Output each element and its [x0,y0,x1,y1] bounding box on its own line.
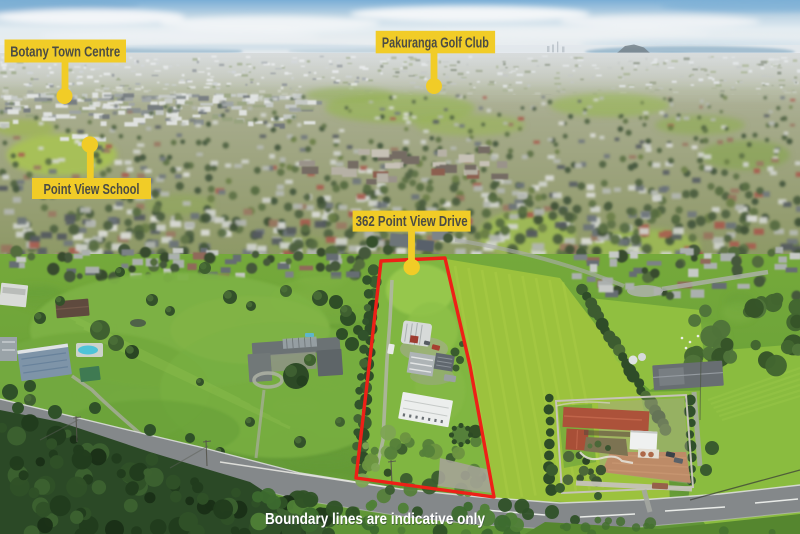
svg-text:Boundary lines are indicative: Boundary lines are indicative only [265,511,485,528]
svg-text:362 Point View Drive: 362 Point View Drive [356,214,468,230]
svg-text:Pakuranga Golf Club: Pakuranga Golf Club [382,34,489,51]
svg-text:Point View School: Point View School [44,181,140,198]
svg-text:Botany Town Centre: Botany Town Centre [10,43,120,60]
